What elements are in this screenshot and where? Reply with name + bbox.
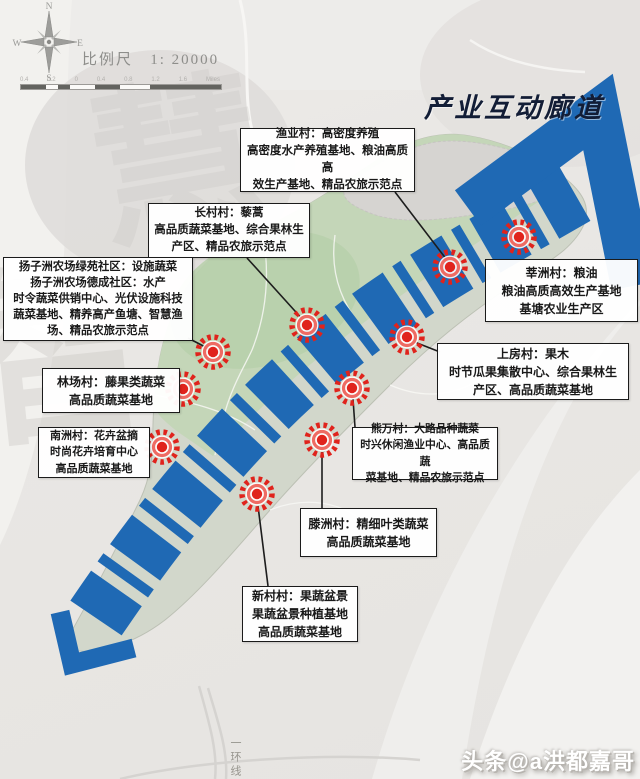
scale-caption: 比例尺 xyxy=(82,52,133,68)
credit-watermark: 头条@a洪都嘉哥 xyxy=(461,744,635,776)
callout-line: 扬子洲农场绿苑社区：设施蔬菜 xyxy=(6,259,190,275)
road-lines-bottom xyxy=(120,686,420,779)
callout-line: 场、精品农旅示范点 xyxy=(6,323,190,339)
callout-xiongwancun: 熊万村：大路品种蔬菜 时兴休闲渔业中心、高品质蔬 菜基地、精品农旅示范点 xyxy=(352,427,498,480)
callout-line: 蔬菜基地、精养高产鱼塘、智慧渔 xyxy=(6,307,190,323)
scale-label: 比例尺 1: 20000 xyxy=(82,48,244,69)
callout-line: 莘洲村：粮油 xyxy=(488,264,635,282)
callout-line: 产区、精品农旅示范点 xyxy=(151,239,307,256)
callout-line: 基塘农业生产区 xyxy=(488,300,635,318)
callout-tengzhoucun: 滕洲村：精细叶类蔬菜 高品质蔬菜基地 xyxy=(300,508,437,557)
scale-tick: 0.8 xyxy=(124,77,132,83)
callout-line: 新村村：果蔬盆景 xyxy=(245,587,355,605)
callout-yuyecun: 渔业村：高密度养殖 高密度水产养殖基地、粮油高质高 效生产基地、精品农旅示范点 xyxy=(240,128,415,192)
callout-line: 时节瓜果集散中心、综合果林生 xyxy=(440,363,626,381)
callout-yangzizhou: 扬子洲农场绿苑社区：设施蔬菜 扬子洲农场德成社区：水产 时令蔬菜供销中心、光伏设… xyxy=(3,257,193,341)
map-scale: 比例尺 1: 20000 0.4 0.2 0 0.4 0.8 1.2 1.6 M… xyxy=(14,48,244,90)
callout-line: 高品质蔬菜基地 xyxy=(245,623,355,641)
callout-line: 长村村：藜蒿 xyxy=(151,205,307,222)
scale-tick: 1.2 xyxy=(151,77,159,83)
callout-linchangcun: 林场村：藤果类蔬菜 高品质蔬菜基地 xyxy=(42,368,180,413)
callout-line: 果蔬盆景种植基地 xyxy=(245,605,355,623)
callout-shangfangcun: 上房村：果木 时节瓜果集散中心、综合果林生 产区、高品质蔬菜基地 xyxy=(437,343,629,400)
callout-line: 粮油高质高效生产基地 xyxy=(488,282,635,300)
callout-line: 高密度水产养殖基地、粮油高质高 xyxy=(243,143,412,178)
callout-line: 高品质蔬菜基地 xyxy=(45,391,177,409)
scale-tick: 0.4 xyxy=(97,77,105,83)
scale-tick: 0.2 xyxy=(47,77,55,83)
callout-line: 高品质蔬菜基地、综合果林生 xyxy=(151,222,307,239)
scale-tick: 0.4 xyxy=(20,77,28,83)
callout-line: 南洲村：花卉盆摘 xyxy=(41,428,147,445)
callout-line: 菜基地、精品农旅示范点 xyxy=(355,470,495,486)
callout-changcuncun: 长村村：藜蒿 高品质蔬菜基地、综合果林生 产区、精品农旅示范点 xyxy=(148,203,310,258)
callout-line: 时兴休闲渔业中心、高品质蔬 xyxy=(355,437,495,469)
callout-line: 高品质蔬菜基地 xyxy=(303,533,434,551)
scale-bar xyxy=(20,84,222,90)
road-name-label: 一环线 xyxy=(227,737,243,779)
callout-nanzhoucun: 南洲村：花卉盆摘 时尚花卉培育中心 高品质蔬菜基地 xyxy=(38,427,150,478)
callout-line: 效生产基地、精品农旅示范点 xyxy=(243,177,412,194)
callout-line: 时令蔬菜供销中心、光伏设施科技 xyxy=(6,291,190,307)
callout-line: 产区、高品质蔬菜基地 xyxy=(440,381,626,399)
callout-xinzhoucun: 莘洲村：粮油 粮油高质高效生产基地 基塘农业生产区 xyxy=(485,259,638,322)
callout-line: 上房村：果木 xyxy=(440,345,626,363)
callout-line: 熊万村：大路品种蔬菜 xyxy=(355,421,495,437)
callout-line: 渔业村：高密度养殖 xyxy=(243,126,412,143)
callout-line: 高品质蔬菜基地 xyxy=(41,461,147,478)
scale-tick: 0 xyxy=(75,77,78,83)
callout-line: 扬子洲农场德成社区：水产 xyxy=(6,275,190,291)
scale-unit: Miles xyxy=(206,77,220,83)
planning-map: N S W E 智 慧 比例尺 1: 20000 0.4 0.2 0 0.4 0… xyxy=(0,0,640,779)
scale-ticks: 0.4 0.2 0 0.4 0.8 1.2 1.6 Miles xyxy=(20,77,220,83)
page-title: 产业互动廊道 xyxy=(424,86,604,125)
callout-line: 滕洲村：精细叶类蔬菜 xyxy=(303,515,434,533)
callout-xincuncun: 新村村：果蔬盆景 果蔬盆景种植基地 高品质蔬菜基地 xyxy=(242,586,358,642)
compass-north-label: N xyxy=(46,2,53,12)
callout-line: 林场村：藤果类蔬菜 xyxy=(45,373,177,391)
scale-tick: 1.6 xyxy=(179,77,187,83)
callout-line: 时尚花卉培育中心 xyxy=(41,444,147,461)
scale-ratio: 1: 20000 xyxy=(150,52,219,68)
